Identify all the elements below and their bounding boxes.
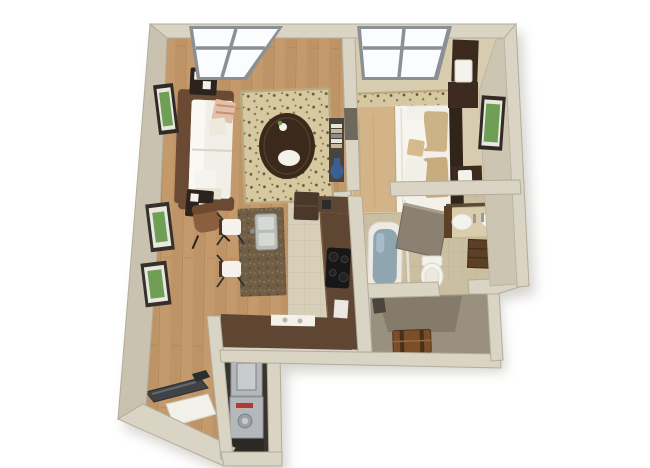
sofa-pillow-white — [208, 118, 227, 137]
closet-dark-item — [372, 297, 386, 314]
tray-dish — [298, 319, 303, 324]
nightstand-north — [448, 82, 478, 108]
bed — [351, 101, 464, 215]
pillow-accent — [407, 139, 425, 157]
tray-dish — [283, 318, 288, 323]
bathtub — [367, 222, 402, 293]
book — [331, 139, 342, 143]
headboard — [449, 101, 464, 213]
closet-floor-shadow — [378, 296, 462, 332]
chair-seat — [222, 219, 241, 235]
dryer-door — [237, 363, 256, 390]
faucet — [473, 214, 476, 223]
small-appliance — [322, 200, 331, 209]
water-highlight — [376, 233, 384, 253]
art-print — [484, 104, 501, 143]
washer-dial-center — [242, 418, 248, 424]
storage-trunk — [393, 329, 432, 353]
bedroom-art — [478, 95, 506, 151]
washer-indicator — [236, 403, 253, 408]
wall-laundry-east — [267, 352, 282, 466]
laundry-closet — [228, 357, 264, 456]
tub-water — [373, 229, 398, 285]
refrigerator — [294, 192, 320, 221]
burner — [339, 273, 348, 282]
lamp-north — [455, 60, 472, 82]
cooktop — [325, 247, 351, 288]
wall-laundry-south — [221, 452, 282, 466]
counter-dishes — [333, 300, 348, 319]
end-table-checker — [190, 193, 199, 202]
floor-plan-render — [0, 0, 650, 468]
faucet — [481, 213, 484, 222]
vanity-side-cabinet — [444, 206, 452, 238]
wall-bedroom-south — [390, 180, 521, 196]
fridge-seam — [295, 206, 318, 207]
coffee-table-tray — [278, 150, 300, 166]
table-flower — [278, 121, 283, 126]
sofa-cushion-seam — [192, 150, 232, 151]
divider-niche-shadow — [344, 108, 358, 140]
sofa-pillow-white — [194, 169, 216, 189]
kitchen-island — [237, 207, 286, 297]
sink-basin — [258, 217, 274, 231]
living-art-3 — [140, 261, 171, 308]
console-shelf — [329, 118, 344, 182]
book — [331, 129, 342, 133]
cooktop-surface — [325, 247, 351, 288]
sink-basin — [258, 233, 274, 247]
chair-seat — [222, 261, 241, 277]
serving-tray — [271, 315, 315, 327]
stacked-washer-dryer — [230, 357, 263, 438]
book — [331, 124, 342, 128]
end-table-checker — [203, 81, 211, 89]
blue-vase — [331, 163, 344, 179]
wall-bath-south-a — [364, 282, 440, 298]
burner — [329, 269, 336, 276]
vessel-sink — [452, 214, 472, 230]
burner — [329, 252, 338, 261]
book — [331, 144, 342, 148]
book — [331, 134, 342, 138]
bedroom-window — [357, 26, 452, 80]
coffee-table — [259, 113, 315, 179]
floor-plan-svg — [0, 0, 650, 468]
burner — [341, 256, 348, 263]
